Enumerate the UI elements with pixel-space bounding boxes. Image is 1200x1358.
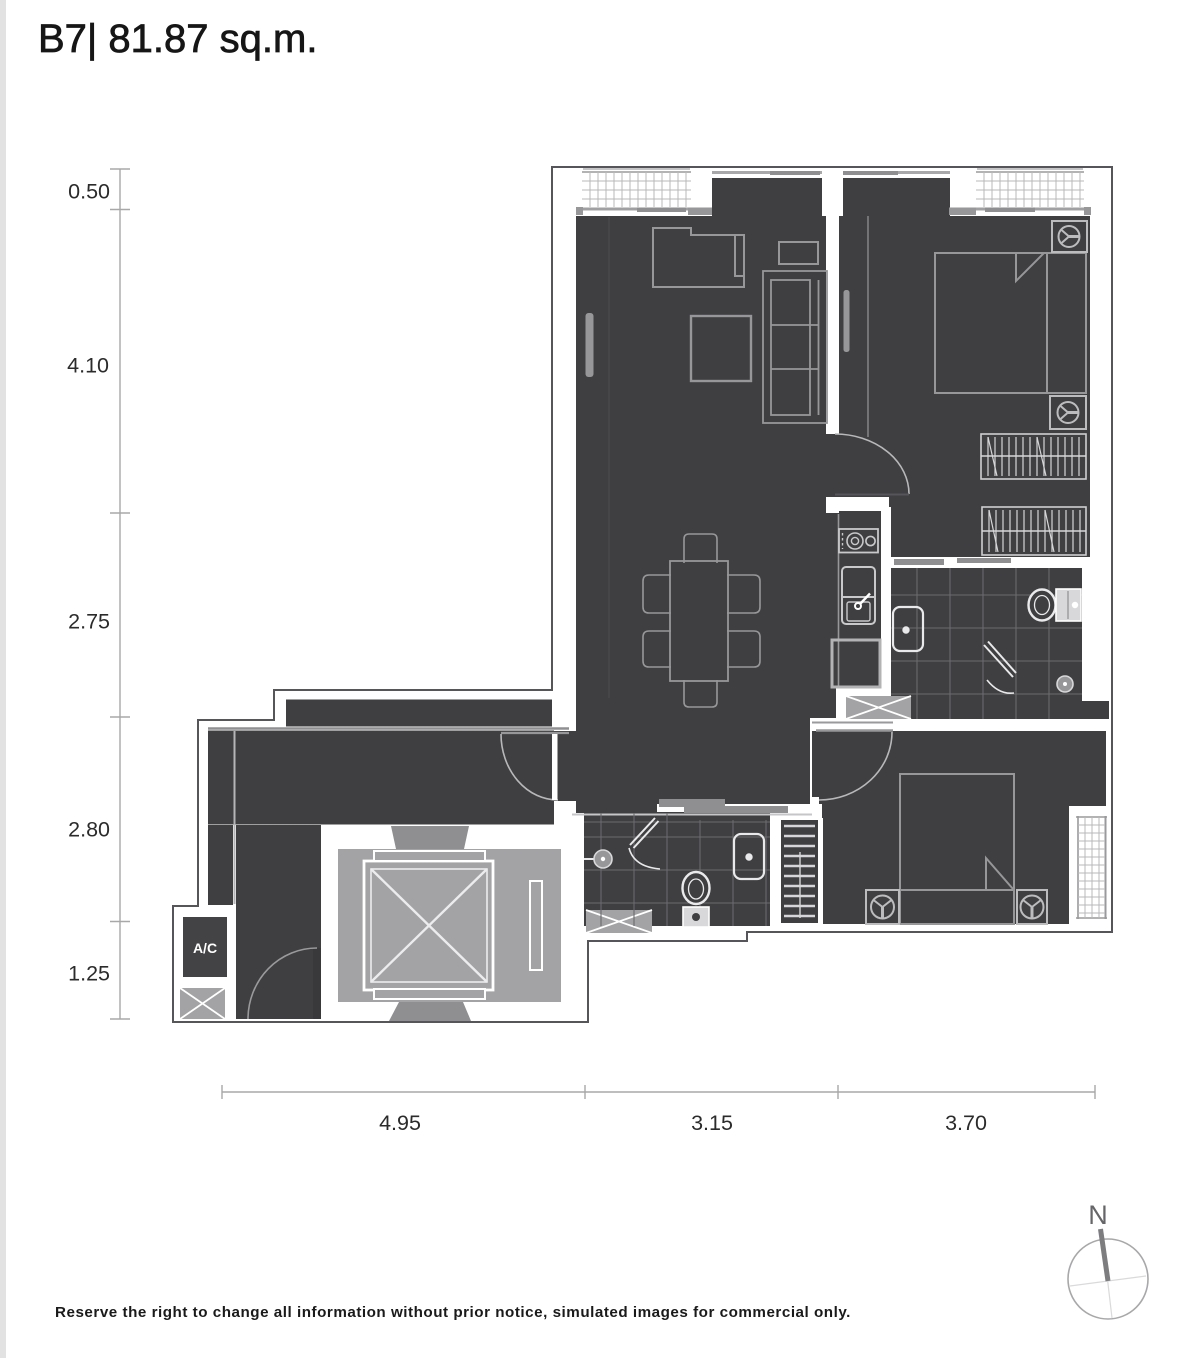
svg-text:2.75: 2.75 xyxy=(68,610,110,634)
svg-text:Reserve the right to change al: Reserve the right to change all informat… xyxy=(55,1304,851,1321)
svg-text:B7| 81.87 sq.m.: B7| 81.87 sq.m. xyxy=(38,17,317,61)
svg-text:4.10: 4.10 xyxy=(67,354,109,378)
svg-text:0.50: 0.50 xyxy=(68,180,110,204)
svg-text:1.25: 1.25 xyxy=(68,962,110,986)
svg-text:A/C: A/C xyxy=(193,940,217,956)
svg-text:2.80: 2.80 xyxy=(68,818,110,842)
svg-text:3.70: 3.70 xyxy=(945,1111,987,1135)
svg-text:4.95: 4.95 xyxy=(379,1111,421,1135)
svg-text:3.15: 3.15 xyxy=(691,1111,733,1135)
svg-text:N: N xyxy=(1088,1200,1108,1230)
